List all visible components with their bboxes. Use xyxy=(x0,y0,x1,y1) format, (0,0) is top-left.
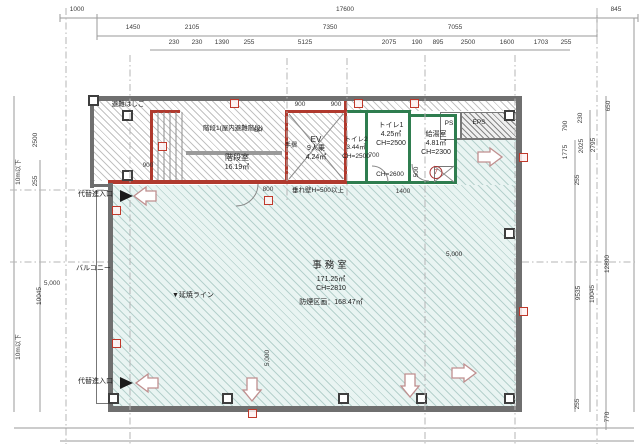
dim-label: 230 xyxy=(169,40,180,47)
office-smoke-zone: 防煙区画：168.47㎡ xyxy=(299,299,362,308)
hanging-wall-note: 垂れ壁H=500以上 xyxy=(292,187,344,195)
escape-route-arrow-icon xyxy=(452,364,476,382)
kitchenette-number-badge: 7 xyxy=(430,160,443,180)
dim-label: 845 xyxy=(611,7,622,14)
elevator-label: EV 9人乗 4.24㎡ xyxy=(306,135,327,163)
dim-label: 500 xyxy=(414,167,421,178)
toilet2-ch: CH=2500 xyxy=(342,153,370,161)
toilet1-area: 4.25㎡ xyxy=(376,131,406,140)
entry-triangle-icon xyxy=(120,190,133,202)
opening-tag xyxy=(230,99,239,108)
opening-tag xyxy=(112,206,121,215)
entry-triangle-icon xyxy=(120,377,133,389)
dim-label: 1450 xyxy=(126,25,140,32)
corridor-ceiling-height: CH=2600 xyxy=(376,171,404,179)
dim-label: 7055 xyxy=(448,25,462,32)
dim-label: 1703 xyxy=(534,40,548,47)
elevator-capacity: 9人乗 xyxy=(306,145,327,154)
escape-route-arrow-icon xyxy=(243,378,261,401)
dim-label: 2105 xyxy=(185,25,199,32)
toilet1-label: トイレ1 4.25㎡ CH=2500 xyxy=(376,122,406,148)
office-dim-5000: 5,000 xyxy=(446,251,462,259)
balcony-label: バルコニー xyxy=(76,265,111,274)
dim-label: 800 xyxy=(263,187,274,194)
elevator-name: EV xyxy=(306,135,327,145)
evacuation-ladder-label: 避難はしご xyxy=(112,101,145,109)
dim-label: 1000 xyxy=(70,7,84,14)
toilet1-name: トイレ1 xyxy=(376,122,406,131)
dim-label: 1600 xyxy=(500,40,514,47)
dim-label: 5,000 xyxy=(265,350,272,366)
dim-label: 17600 xyxy=(336,7,354,14)
toilet1-ch: CH=2500 xyxy=(376,140,406,149)
dim-label: 2500 xyxy=(33,133,40,147)
fire-spread-line-label: ▼延焼ライン xyxy=(172,292,214,301)
dim-label: 895 xyxy=(433,40,444,47)
escape-route-arrow-icon xyxy=(478,148,502,166)
dim-label: 900 xyxy=(143,163,154,170)
office-name: 事務室 xyxy=(299,260,362,272)
dim-label: 5125 xyxy=(298,40,312,47)
electric-pipe-shaft-label: EPS xyxy=(472,119,485,127)
dim-label: 255 xyxy=(33,176,40,187)
dim-label: 1390 xyxy=(215,40,229,47)
dim-label: 900 xyxy=(331,102,342,109)
kitchenette-label: 給湯室 4.81㎡ CH=2300 xyxy=(421,131,451,157)
dim-label: 2500 xyxy=(461,40,475,47)
dim-label: 5,000 xyxy=(44,281,60,288)
dim-label: 770 xyxy=(605,412,612,423)
dim-label: 790 xyxy=(563,121,570,132)
elevator-area: 4.24㎡ xyxy=(306,154,327,163)
kitchenette-name: 給湯室 xyxy=(421,131,451,140)
dim-label: 190 xyxy=(412,40,423,47)
dim-label: 2795 xyxy=(591,138,598,152)
dim-label: 10045 xyxy=(590,285,597,303)
opening-tag xyxy=(354,99,363,108)
dim-label: 10045 xyxy=(37,287,44,305)
circled-number-icon: 7 xyxy=(430,166,443,179)
dim-label: 10m以下 xyxy=(16,334,23,360)
opening-tag xyxy=(112,339,121,348)
dim-label: 900 xyxy=(295,102,306,109)
dim-label: 7350 xyxy=(323,25,337,32)
stair-room-label: 階段室 xyxy=(225,153,249,163)
kitchenette-area: 4.81㎡ xyxy=(421,140,451,149)
dim-label: 2025 xyxy=(579,139,586,153)
escape-route-arrow-icon xyxy=(134,187,156,205)
dim-label: 9535 xyxy=(576,286,583,300)
opening-tag xyxy=(410,99,419,108)
handrail-label: 手摺 xyxy=(285,143,297,151)
escape-route-arrow-icon xyxy=(136,374,158,392)
dim-label: 255 xyxy=(244,40,255,47)
floor-plan-drawing: 避難はしご 階段1(屋内避難階段) 階段室 16.19㎡ UP 手摺 EV 9人… xyxy=(0,0,640,447)
dim-label: 1775 xyxy=(563,145,570,159)
stair-room-area: 16.19㎡ xyxy=(225,164,250,173)
pipe-shaft-label: PS xyxy=(445,120,454,128)
dim-label: 255 xyxy=(575,399,582,410)
kitchenette-ch: CH=2300 xyxy=(421,149,451,158)
dim-label: 255 xyxy=(561,40,572,47)
office-label: 事務室 171.25㎡ CH=2810 防煙区画：168.47㎡ xyxy=(299,260,362,308)
opening-tag xyxy=(519,153,528,162)
dim-label: 700 xyxy=(369,153,380,160)
opening-tag xyxy=(248,409,257,418)
dim-label: 650 xyxy=(606,101,613,112)
dim-label: 255 xyxy=(575,175,582,186)
stair-up-label: UP xyxy=(254,128,262,136)
toilet2-label: トイレ2 3.44㎡ CH=2500 xyxy=(342,136,370,161)
dim-label: 10m以下 xyxy=(16,159,23,185)
office-area: 171.25㎡ xyxy=(299,276,362,285)
dim-label: 230 xyxy=(578,113,585,124)
escape-route-arrow-icon xyxy=(401,374,419,397)
alternative-entry-label-bottom: 代替進入口 xyxy=(78,378,113,387)
dim-label: 230 xyxy=(192,40,203,47)
alternative-entry-label-top: 代替進入口 xyxy=(78,191,113,200)
opening-tag xyxy=(264,196,273,205)
dim-label: 12800 xyxy=(605,255,612,273)
toilet2-area: 3.44㎡ xyxy=(342,144,370,152)
door-swing-arc xyxy=(236,184,258,206)
opening-tag xyxy=(158,142,167,151)
office-ceiling-height: CH=2810 xyxy=(299,285,362,294)
opening-tag xyxy=(519,307,528,316)
dim-label: 1400 xyxy=(396,189,410,196)
dim-label: 2075 xyxy=(382,40,396,47)
